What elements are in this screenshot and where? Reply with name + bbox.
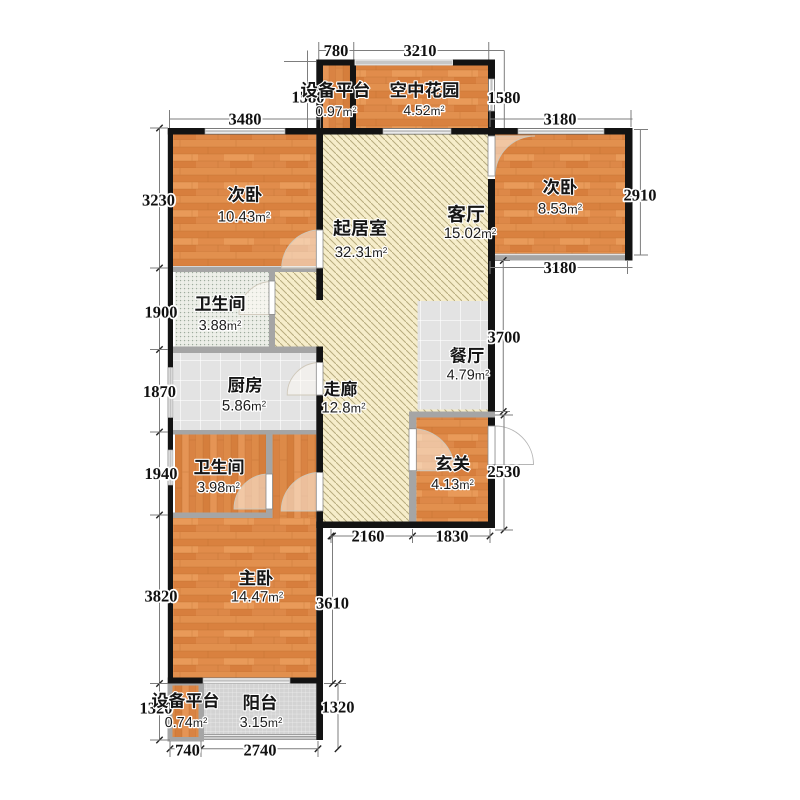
- svg-text:3.98m2: 3.98m2: [197, 480, 240, 496]
- svg-text:3480: 3480: [229, 110, 262, 129]
- svg-text:1320: 1320: [322, 698, 355, 717]
- svg-text:0.74m2: 0.74m2: [165, 715, 208, 731]
- svg-text:3.15m2: 3.15m2: [240, 715, 283, 731]
- svg-text:2740: 2740: [244, 741, 277, 760]
- svg-text:1830: 1830: [436, 527, 469, 546]
- svg-text:2910: 2910: [624, 186, 657, 205]
- svg-text:5.86m2: 5.86m2: [222, 398, 267, 415]
- svg-text:0.97m2: 0.97m2: [315, 103, 356, 119]
- svg-text:14.47m2: 14.47m2: [231, 589, 284, 606]
- svg-text:3210: 3210: [404, 41, 437, 60]
- svg-text:1940: 1940: [145, 464, 178, 483]
- svg-text:4.79m2: 4.79m2: [447, 368, 490, 384]
- svg-text:12.8m2: 12.8m2: [321, 400, 366, 417]
- svg-text:2160: 2160: [352, 527, 385, 546]
- svg-text:3.88m2: 3.88m2: [199, 318, 242, 334]
- svg-text:3180: 3180: [544, 110, 577, 129]
- svg-text:4.13m2: 4.13m2: [431, 477, 474, 493]
- svg-text:32.31m2: 32.31m2: [335, 244, 388, 261]
- svg-text:8.53m2: 8.53m2: [538, 201, 583, 218]
- svg-text:780: 780: [324, 41, 349, 60]
- svg-text:2530: 2530: [488, 462, 521, 481]
- svg-text:3820: 3820: [145, 587, 178, 606]
- svg-text:3180: 3180: [544, 258, 577, 277]
- svg-text:3230: 3230: [142, 191, 175, 210]
- svg-text:1580: 1580: [488, 88, 521, 107]
- svg-text:15.02m2: 15.02m2: [444, 225, 497, 242]
- svg-text:10.43m2: 10.43m2: [218, 209, 271, 226]
- svg-text:3610: 3610: [316, 594, 349, 613]
- svg-text:1900: 1900: [145, 303, 178, 322]
- svg-text:1870: 1870: [143, 382, 176, 401]
- svg-text:740: 740: [175, 741, 200, 760]
- svg-text:4.52m2: 4.52m2: [403, 102, 444, 118]
- svg-text:3700: 3700: [488, 328, 521, 347]
